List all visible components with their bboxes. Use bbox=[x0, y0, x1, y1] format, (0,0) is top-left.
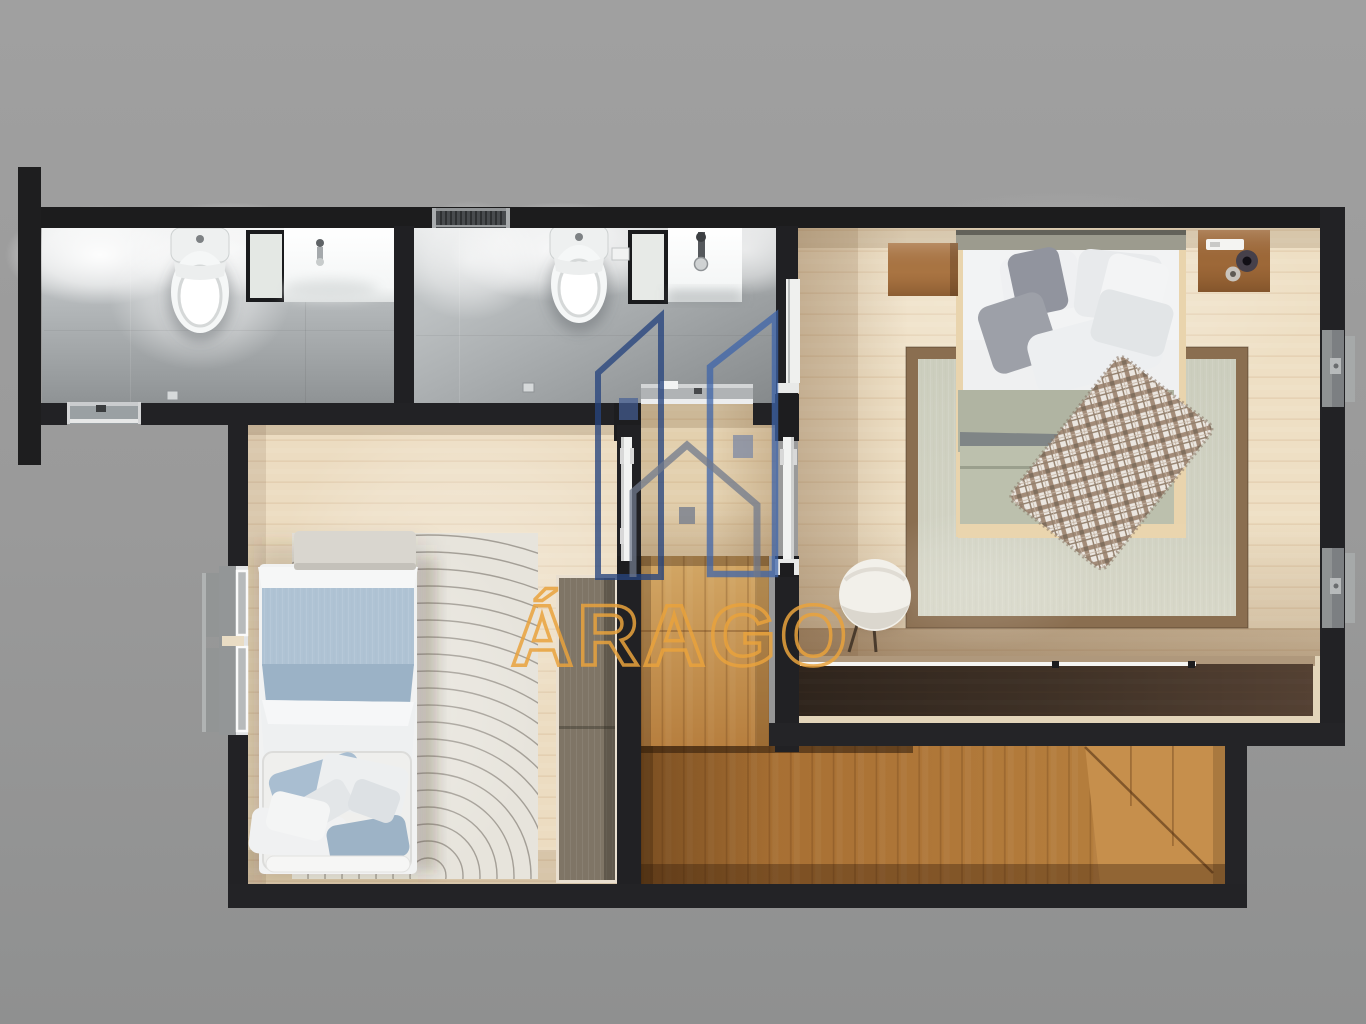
svg-text:ÁRAGO: ÁRAGO bbox=[511, 588, 851, 684]
